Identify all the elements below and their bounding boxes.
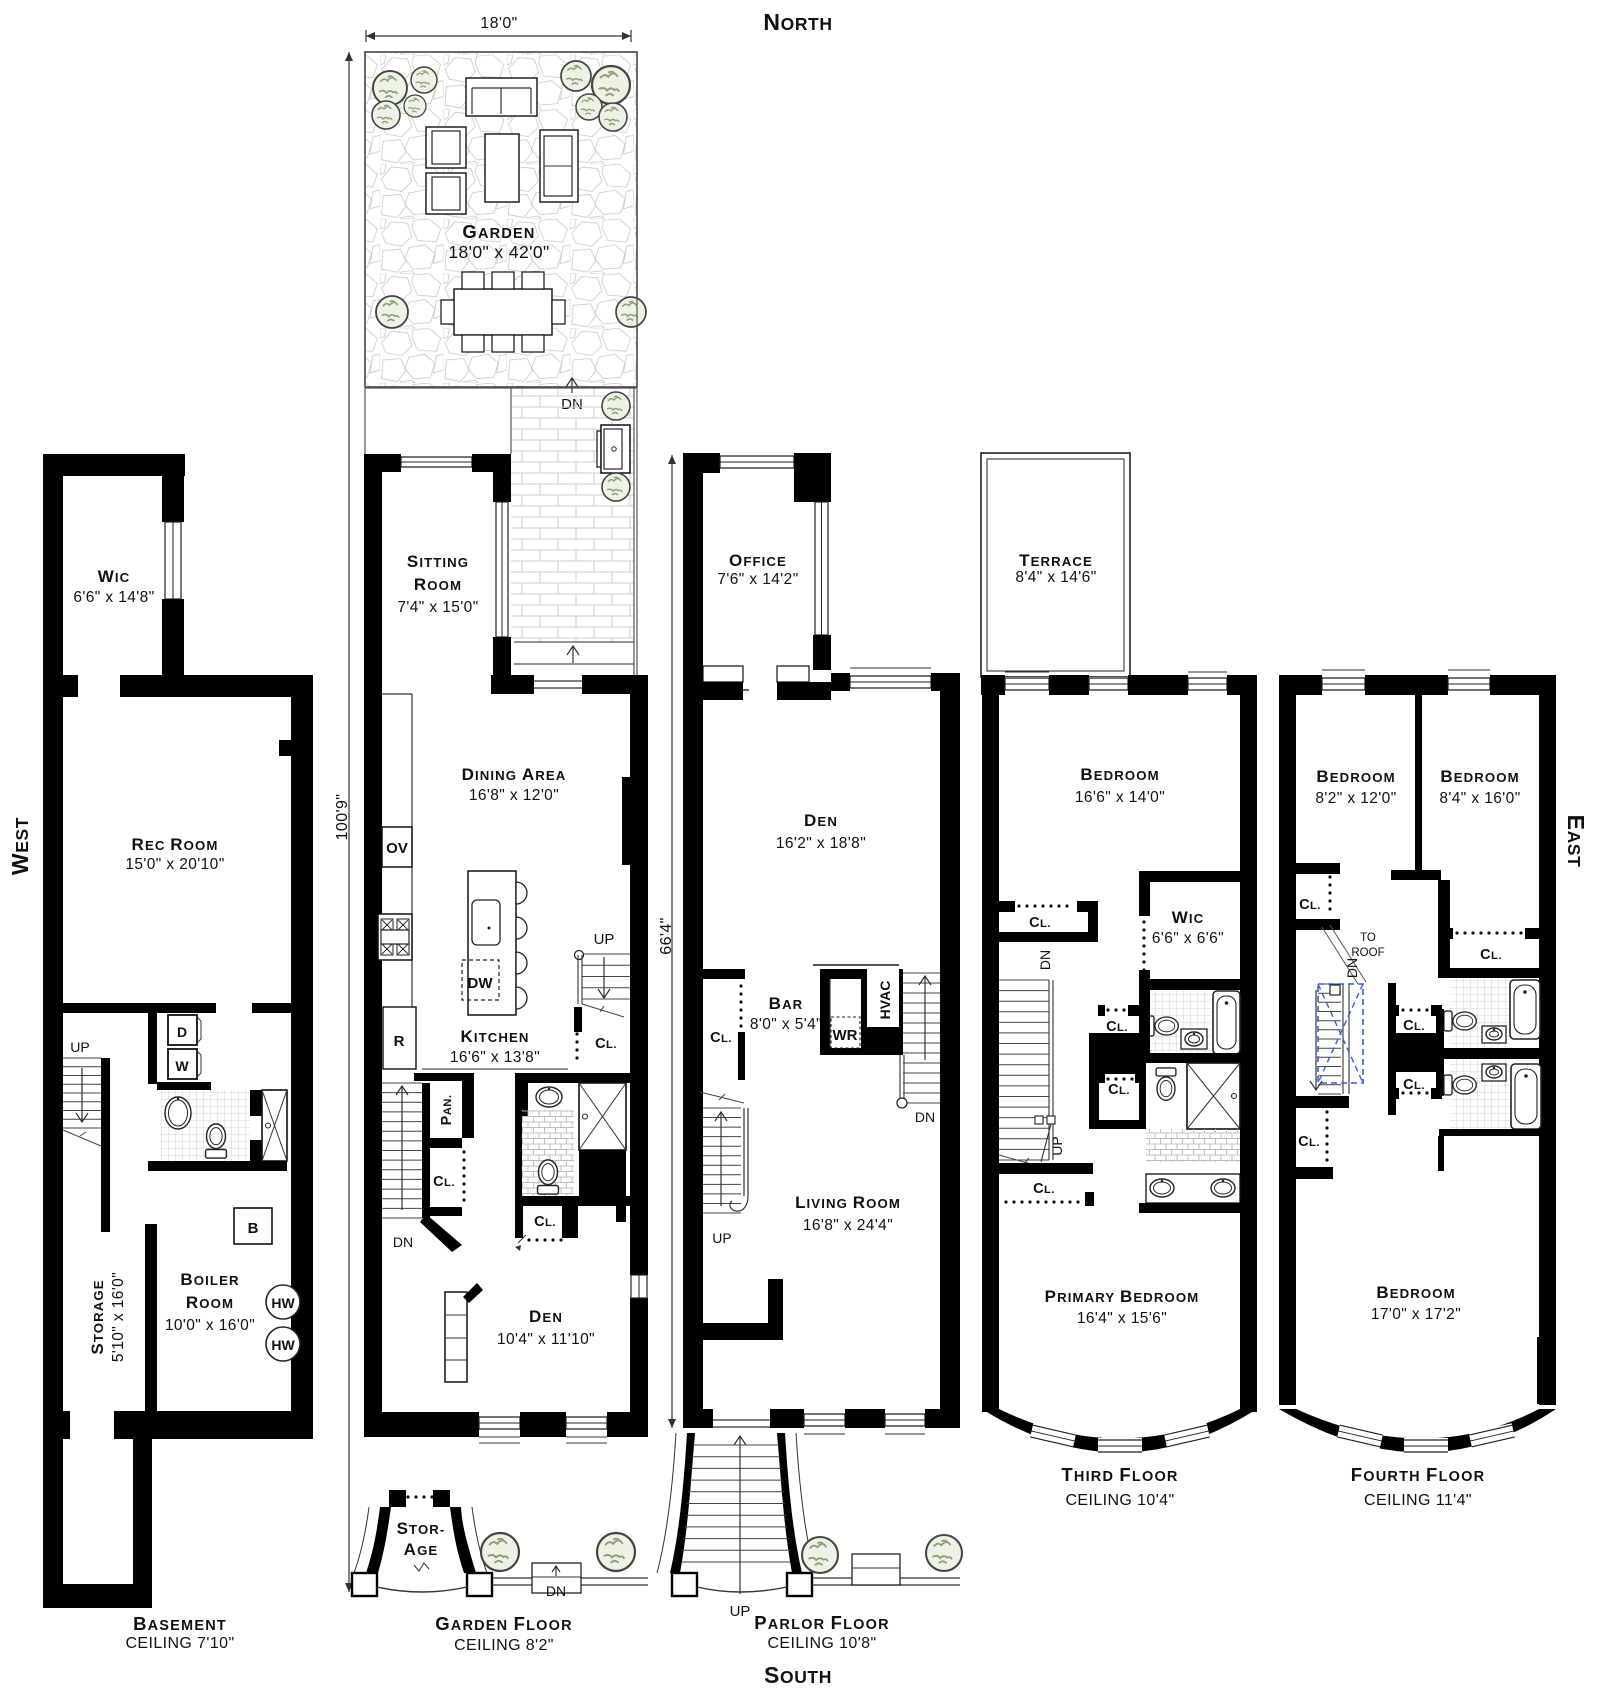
svg-text:CL.: CL. (534, 1214, 556, 1230)
svg-text:16'6" x 14'0": 16'6" x 14'0" (1075, 789, 1165, 806)
svg-text:CL.: CL. (1108, 1082, 1130, 1098)
svg-text:DN: DN (393, 1234, 413, 1250)
svg-text:PRIMARY BEDROOM: PRIMARY BEDROOM (1045, 1287, 1200, 1306)
svg-text:UP: UP (70, 1039, 89, 1055)
svg-text:CEILING 10'4": CEILING 10'4" (1065, 1492, 1174, 1509)
svg-text:WR: WR (833, 1027, 858, 1044)
svg-text:CL.: CL. (1106, 1019, 1128, 1035)
svg-text:UP: UP (1049, 1136, 1065, 1155)
svg-text:HW: HW (271, 1295, 295, 1311)
svg-text:10'4" x 11'10": 10'4" x 11'10" (497, 1331, 595, 1348)
svg-text:8'2" x 12'0": 8'2" x 12'0" (1315, 790, 1396, 807)
svg-text:BEDROOM: BEDROOM (1080, 765, 1159, 784)
svg-text:STORAGE: STORAGE (88, 1279, 107, 1354)
svg-text:CL.: CL. (1298, 1134, 1320, 1150)
svg-text:DN: DN (1037, 950, 1053, 970)
svg-text:CL.: CL. (1299, 897, 1321, 913)
svg-text:CL.: CL. (595, 1036, 617, 1052)
svg-text:CL.: CL. (1029, 915, 1051, 931)
svg-text:WIC: WIC (1172, 908, 1205, 927)
svg-text:15'0" x 20'10": 15'0" x 20'10" (125, 856, 224, 873)
svg-text:8'4" x 16'0": 8'4" x 16'0" (1439, 790, 1520, 807)
svg-text:DN: DN (915, 1109, 935, 1125)
svg-text:CEILING 11'4": CEILING 11'4" (1364, 1492, 1472, 1509)
svg-text:UP: UP (712, 1230, 731, 1246)
svg-text:R: R (394, 1033, 405, 1050)
svg-text:18'0" x 42'0": 18'0" x 42'0" (448, 242, 549, 262)
svg-text:BEDROOM: BEDROOM (1440, 767, 1519, 786)
svg-text:16'8" x 12'0": 16'8" x 12'0" (469, 787, 559, 804)
svg-text:CL.: CL. (1403, 1018, 1425, 1034)
svg-text:16'8" x 24'4": 16'8" x 24'4" (803, 1217, 893, 1234)
svg-text:CEILING 7'10": CEILING 7'10" (125, 1635, 234, 1652)
svg-text:CL.: CL. (1403, 1077, 1425, 1093)
svg-text:8'4" x 14'6": 8'4" x 14'6" (1015, 569, 1096, 586)
svg-text:KITCHEN: KITCHEN (460, 1027, 529, 1046)
svg-text:DEN: DEN (529, 1307, 563, 1326)
svg-text:CL.: CL. (710, 1030, 732, 1046)
svg-text:8'0" x 5'4": 8'0" x 5'4" (750, 1016, 822, 1033)
svg-text:DEN: DEN (804, 811, 838, 830)
svg-text:OFFICE: OFFICE (729, 551, 787, 570)
svg-text:66'4": 66'4" (658, 917, 675, 954)
svg-text:100'9": 100'9" (334, 794, 351, 841)
svg-text:TERRACE: TERRACE (1019, 551, 1093, 570)
svg-text:18'0": 18'0" (480, 15, 517, 32)
svg-text:7'4" x 15'0": 7'4" x 15'0" (397, 599, 478, 616)
svg-text:D: D (177, 1024, 187, 1040)
svg-text:BOILER: BOILER (180, 1270, 239, 1289)
svg-text:REC ROOM: REC ROOM (132, 835, 219, 854)
svg-text:CEILING 8'2": CEILING 8'2" (454, 1637, 554, 1654)
svg-text:BEDROOM: BEDROOM (1376, 1283, 1455, 1302)
svg-text:ROOM: ROOM (186, 1293, 234, 1312)
svg-text:ROOM: ROOM (414, 575, 462, 594)
svg-text:UP: UP (730, 1603, 751, 1620)
svg-text:HVAC: HVAC (877, 981, 893, 1020)
svg-text:7'6" x 14'2": 7'6" x 14'2" (717, 571, 798, 588)
svg-text:DW: DW (468, 975, 494, 992)
svg-text:OV: OV (386, 840, 408, 857)
svg-text:CL.: CL. (1033, 1181, 1055, 1197)
svg-text:6'6" x 6'6": 6'6" x 6'6" (1152, 930, 1224, 947)
svg-text:B: B (248, 1220, 259, 1237)
svg-text:16'6" x 13'8": 16'6" x 13'8" (450, 1049, 540, 1066)
svg-text:BEDROOM: BEDROOM (1316, 767, 1395, 786)
svg-text:17'0" x 17'2": 17'0" x 17'2" (1371, 1306, 1461, 1323)
svg-text:UP: UP (594, 931, 615, 948)
svg-text:DINING AREA: DINING AREA (462, 765, 567, 784)
svg-text:AGE: AGE (404, 1540, 439, 1559)
svg-text:LIVING ROOM: LIVING ROOM (795, 1193, 901, 1212)
svg-text:TO: TO (1360, 932, 1376, 944)
svg-text:16'4" x 15'6": 16'4" x 15'6" (1077, 1310, 1167, 1327)
svg-text:CL.: CL. (433, 1174, 455, 1190)
svg-text:10'0" x 16'0": 10'0" x 16'0" (165, 1317, 255, 1334)
svg-text:STOR-: STOR- (397, 1519, 446, 1538)
svg-text:6'6" x 14'8": 6'6" x 14'8" (73, 589, 154, 606)
svg-text:5'10" x 16'0": 5'10" x 16'0" (110, 1272, 127, 1362)
svg-text:HW: HW (271, 1337, 295, 1353)
svg-text:BAR: BAR (769, 994, 804, 1013)
svg-text:PAN.: PAN. (439, 1095, 455, 1126)
svg-text:16'2" x 18'8": 16'2" x 18'8" (776, 835, 866, 852)
svg-text:DN: DN (1344, 958, 1360, 978)
svg-text:ROOF: ROOF (1351, 947, 1384, 959)
svg-text:W: W (175, 1058, 189, 1074)
svg-text:WIC: WIC (98, 567, 131, 586)
svg-text:CL.: CL. (1480, 947, 1502, 963)
svg-text:DN: DN (546, 1583, 566, 1599)
svg-text:SITTING: SITTING (407, 552, 469, 571)
svg-text:CEILING 10'8": CEILING 10'8" (767, 1635, 876, 1652)
